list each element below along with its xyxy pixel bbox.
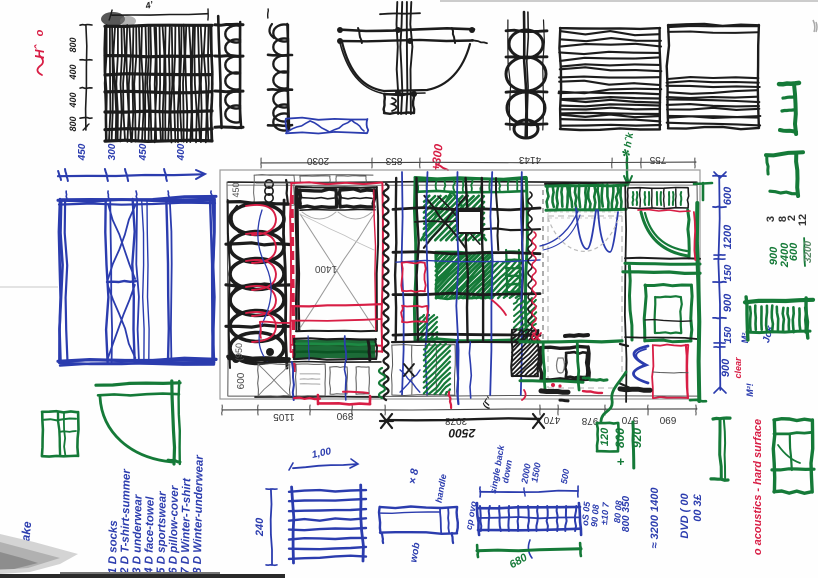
svg-text:o: o bbox=[34, 29, 46, 36]
svg-text:150: 150 bbox=[723, 326, 734, 343]
svg-text:2030: 2030 bbox=[306, 155, 329, 166]
svg-text:00 3£: 00 3£ bbox=[692, 493, 704, 521]
svg-text:240: 240 bbox=[254, 517, 266, 537]
svg-text:1400: 1400 bbox=[314, 263, 337, 274]
svg-text:470: 470 bbox=[543, 414, 560, 425]
svg-text:690: 690 bbox=[659, 414, 676, 425]
svg-text:400: 400 bbox=[68, 92, 78, 108]
svg-text:1105: 1105 bbox=[273, 411, 295, 422]
svg-text:clear: clear bbox=[733, 357, 743, 379]
svg-text:900: 900 bbox=[720, 358, 732, 377]
svg-text:8 D Winter-underwear: 8 D Winter-underwear bbox=[192, 455, 206, 574]
svg-text:900: 900 bbox=[722, 293, 734, 312]
svg-text:±10 7: ±10 7 bbox=[599, 501, 611, 525]
svg-text:3: 3 bbox=[765, 216, 777, 222]
svg-text:853: 853 bbox=[385, 155, 402, 166]
svg-text:1200: 1200 bbox=[722, 224, 734, 249]
svg-text:12: 12 bbox=[797, 214, 809, 226]
svg-text:M²!: M²! bbox=[745, 383, 755, 397]
svg-text:570: 570 bbox=[621, 414, 638, 425]
svg-text:≈ 3200 1400: ≈ 3200 1400 bbox=[649, 487, 661, 549]
svg-text:o acoustics - hard surface: o acoustics - hard surface bbox=[752, 419, 764, 555]
svg-text:80 08: 80 08 bbox=[612, 500, 624, 523]
svg-text:600: 600 bbox=[788, 242, 800, 261]
svg-text:450: 450 bbox=[231, 182, 241, 197]
svg-text:800: 800 bbox=[68, 37, 78, 52]
svg-text:150: 150 bbox=[723, 264, 734, 281]
svg-text:450: 450 bbox=[138, 143, 149, 161]
svg-text:400: 400 bbox=[68, 64, 78, 80]
svg-text:2500: 2500 bbox=[448, 426, 476, 440]
svg-text:1 D socks: 1 D socks bbox=[107, 520, 120, 574]
svg-text:800: 800 bbox=[613, 428, 627, 448]
svg-text:3200: 3200 bbox=[803, 240, 814, 263]
svg-text:890: 890 bbox=[336, 410, 353, 421]
svg-text:DVD ( 00: DVD ( 00 bbox=[679, 493, 691, 539]
svg-text:300: 300 bbox=[107, 143, 118, 160]
svg-text:(950: (950 bbox=[234, 343, 244, 361]
svg-text:800: 800 bbox=[68, 116, 78, 131]
svg-text:600: 600 bbox=[722, 186, 734, 205]
svg-text:4143: 4143 bbox=[518, 154, 541, 165]
svg-text:120: 120 bbox=[599, 427, 611, 446]
svg-text:755: 755 bbox=[649, 154, 666, 165]
svg-text:+: + bbox=[613, 458, 628, 466]
svg-text:600: 600 bbox=[236, 372, 247, 389]
svg-text:450: 450 bbox=[77, 143, 88, 161]
svg-text:400: 400 bbox=[176, 143, 187, 161]
